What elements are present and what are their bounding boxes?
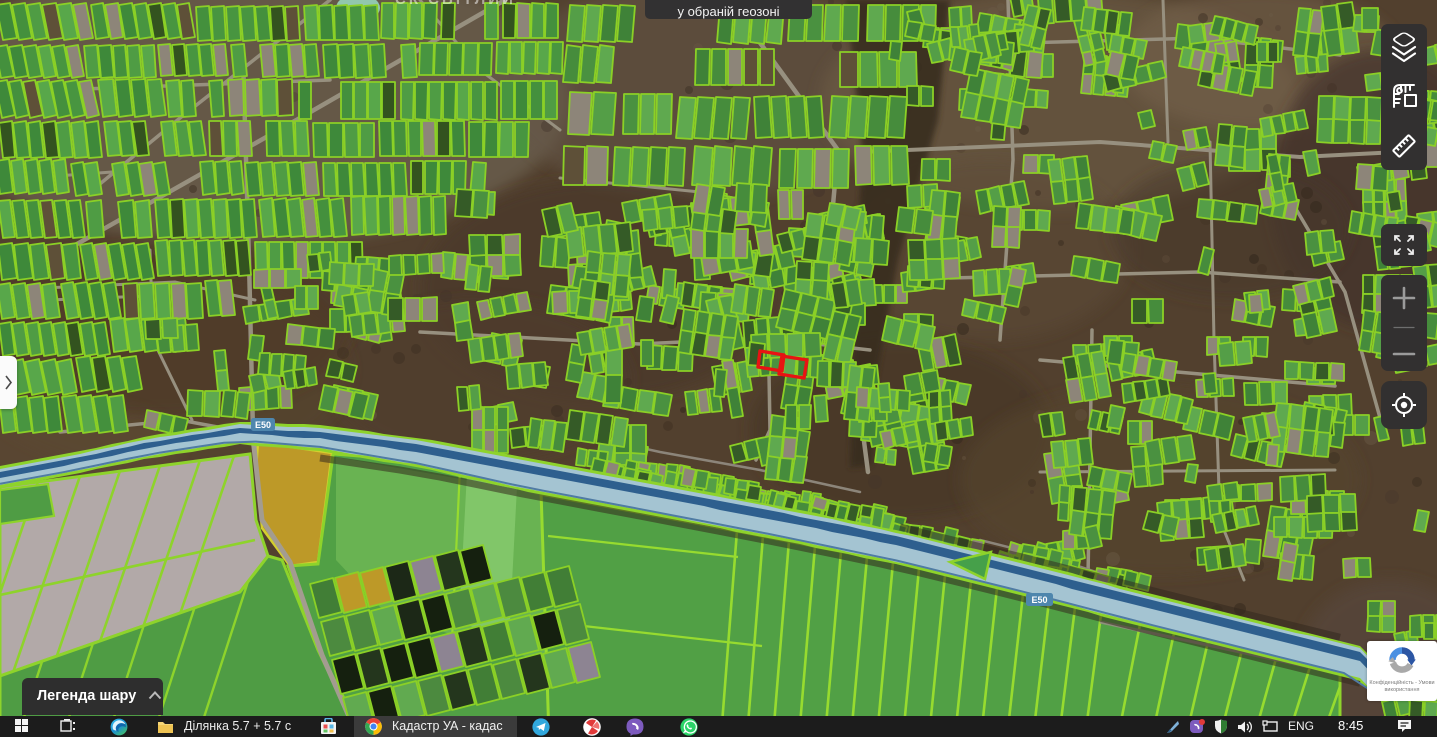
svg-text:E50: E50 — [1031, 595, 1047, 605]
svg-text:E50: E50 — [255, 420, 271, 430]
